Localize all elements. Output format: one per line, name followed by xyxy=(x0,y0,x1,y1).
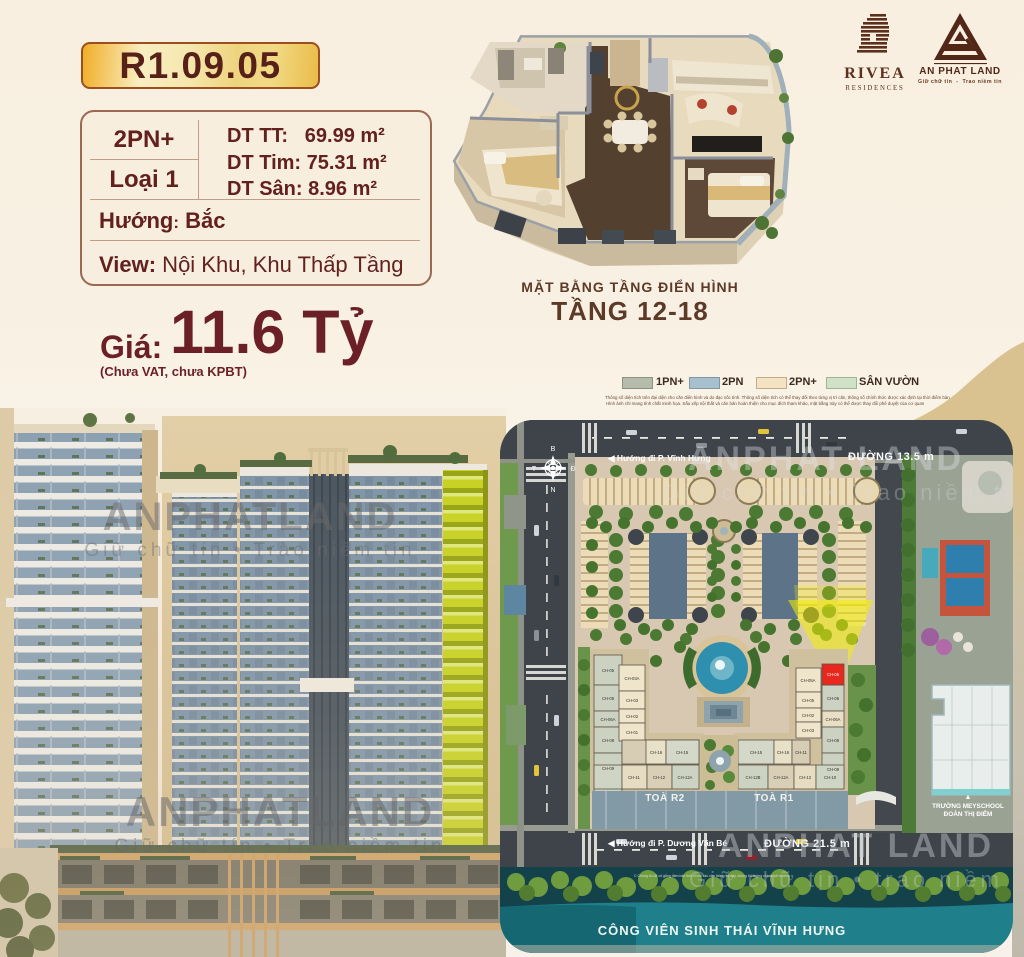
svg-text:ANPHATLAND: ANPHATLAND xyxy=(126,788,435,835)
svg-text:CH-12: CH-12 xyxy=(653,775,666,780)
svg-text:Giữ chữ tín • Trào niềm tin: Giữ chữ tín • Trào niềm tin xyxy=(114,836,445,857)
svg-text:CH-02: CH-02 xyxy=(626,714,639,719)
svg-text:CH-12B: CH-12B xyxy=(746,775,761,780)
svg-text:CH-05A: CH-05A xyxy=(801,678,816,683)
svg-text:CH-05: CH-05 xyxy=(802,698,815,703)
svg-text:CH-02: CH-02 xyxy=(802,713,815,718)
svg-text:CH-06A: CH-06A xyxy=(601,717,616,722)
svg-text:CH-12: CH-12 xyxy=(799,775,812,780)
svg-text:Giữ chữ tín • Trao niềm tin: Giữ chữ tín • Trao niềm tin xyxy=(663,480,1016,505)
svg-text:CH-10: CH-10 xyxy=(824,775,837,780)
svg-text:CH-08: CH-08 xyxy=(827,738,840,743)
svg-text:Giữ chữ tín - Trao niềm tin: Giữ chữ tín - Trao niềm tin xyxy=(918,79,1002,85)
svg-text:TOÀ R2: TOÀ R2 xyxy=(645,791,685,804)
svg-text:CH-03: CH-03 xyxy=(802,728,815,733)
svg-text:N: N xyxy=(550,487,555,494)
svg-text:CH-11: CH-11 xyxy=(628,775,640,780)
svg-text:CH-15: CH-15 xyxy=(750,750,763,755)
svg-text:CH-08: CH-08 xyxy=(602,738,615,743)
svg-text:AN PHAT LAND: AN PHAT LAND xyxy=(919,66,1000,77)
svg-text:CH-06A: CH-06A xyxy=(826,717,841,722)
svg-text:◀ Hướng đi P. Dương Văn Bé: ◀ Hướng đi P. Dương Văn Bé xyxy=(607,838,727,848)
svg-text:CH-12A: CH-12A xyxy=(774,775,789,780)
svg-text:T: T xyxy=(532,466,537,473)
svg-text:TRƯỜNG MEYSCHOOL: TRƯỜNG MEYSCHOOL xyxy=(932,801,1004,810)
svg-text:CH-01: CH-01 xyxy=(626,730,639,735)
svg-text:ĐOÀN THỊ ĐIỂM: ĐOÀN THỊ ĐIỂM xyxy=(944,809,993,818)
svg-text:CH-06: CH-06 xyxy=(602,696,615,701)
svg-text:ANPHAT LAND: ANPHAT LAND xyxy=(718,827,994,865)
svg-text:CH-05: CH-05 xyxy=(602,668,615,673)
svg-text:RESIDENCES: RESIDENCES xyxy=(845,85,904,92)
svg-text:Giữ chữ tịn • trao niềm: Giữ chữ tịn • trao niềm xyxy=(689,867,1003,892)
svg-text:CH-05: CH-05 xyxy=(827,672,840,677)
svg-text:▲: ▲ xyxy=(965,794,972,801)
svg-text:CH-11: CH-11 xyxy=(795,750,807,755)
svg-text:CH-16: CH-16 xyxy=(777,750,790,755)
svg-text:Đ: Đ xyxy=(570,466,575,473)
svg-text:RIVEA: RIVEA xyxy=(844,65,906,82)
svg-text:C Chúng tôi đã cố gắng đảm bảo: C Chúng tôi đã cố gắng đảm bảo tính chín… xyxy=(634,873,789,878)
svg-text:CH-09: CH-09 xyxy=(827,767,840,772)
svg-text:CH-15: CH-15 xyxy=(676,750,689,755)
svg-text:CH-03: CH-03 xyxy=(626,698,639,703)
svg-text:ANPHATLAND: ANPHATLAND xyxy=(103,495,398,539)
svg-text:CH-09: CH-09 xyxy=(602,766,615,771)
svg-text:ANPHAT LAND: ANPHAT LAND xyxy=(688,440,964,478)
svg-text:CH-03A: CH-03A xyxy=(625,676,640,681)
svg-text:CÔNG VIÊN SINH THÁI VĨNH HƯNG: CÔNG VIÊN SINH THÁI VĨNH HƯNG xyxy=(598,923,847,938)
svg-text:B: B xyxy=(551,446,556,453)
svg-text:CH-16: CH-16 xyxy=(650,750,663,755)
svg-text:TOÀ R1: TOÀ R1 xyxy=(754,791,794,804)
svg-text:Giữ chữ tín • Trào niềm tin: Giữ chữ tín • Trào niềm tin xyxy=(84,540,415,561)
svg-text:CH-06: CH-06 xyxy=(827,696,840,701)
svg-text:CH-12A: CH-12A xyxy=(678,775,693,780)
